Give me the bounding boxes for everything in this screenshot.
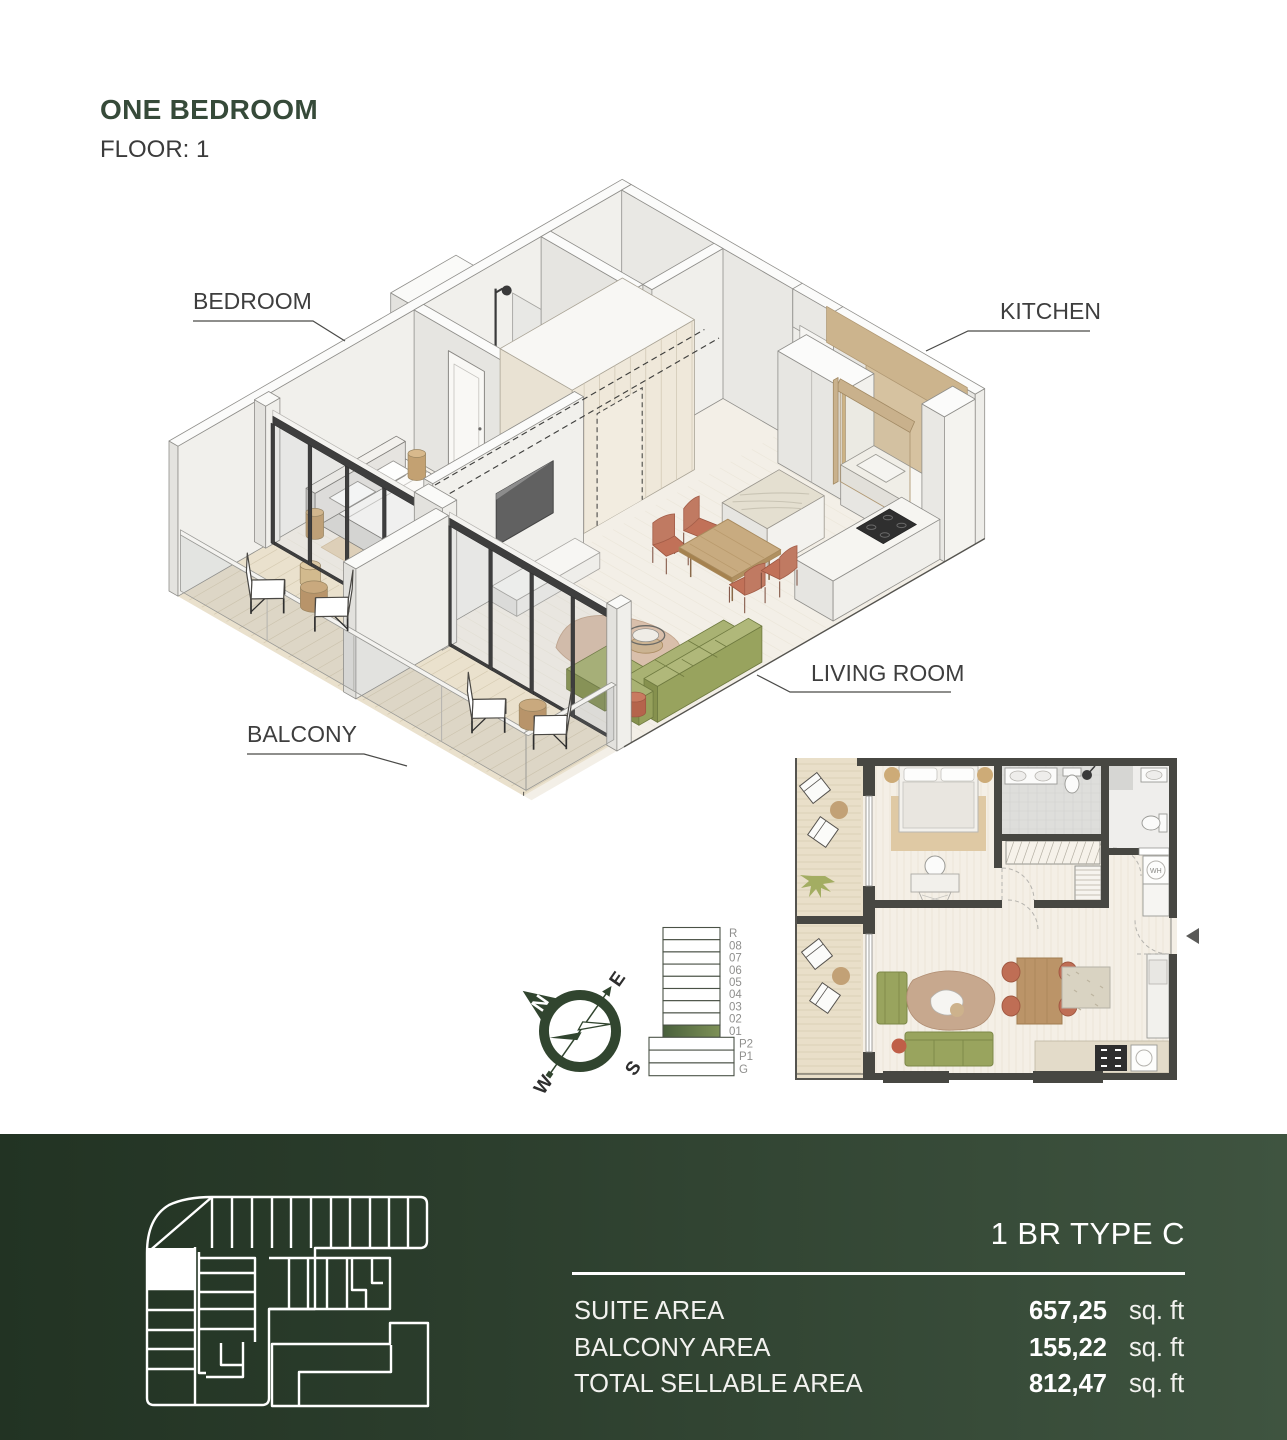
svg-text:BALCONY: BALCONY [247,721,357,747]
svg-text:BALCONY AREA: BALCONY AREA [574,1334,771,1362]
svg-text:02: 02 [729,1014,742,1026]
svg-text:BEDROOM: BEDROOM [193,288,312,314]
svg-text:01: 01 [729,1026,742,1038]
svg-text:sq. ft: sq. ft [1129,1297,1184,1325]
svg-text:FLOOR: 1: FLOOR: 1 [100,136,209,163]
svg-text:P2: P2 [739,1038,753,1050]
svg-text:R: R [729,928,737,940]
svg-text:05: 05 [729,977,742,989]
svg-text:07: 07 [729,953,742,965]
svg-text:657,25: 657,25 [1029,1297,1107,1325]
svg-text:WH: WH [1150,868,1162,875]
svg-text:812,47: 812,47 [1029,1370,1107,1398]
svg-text:1 BR TYPE C: 1 BR TYPE C [991,1216,1185,1251]
svg-text:ONE BEDROOM: ONE BEDROOM [100,94,318,125]
svg-text:G: G [739,1064,748,1076]
svg-text:sq. ft: sq. ft [1129,1334,1184,1362]
svg-text:04: 04 [729,989,742,1001]
svg-text:P1: P1 [739,1051,753,1063]
svg-text:155,22: 155,22 [1029,1334,1107,1362]
svg-text:03: 03 [729,1001,742,1013]
svg-text:LIVING ROOM: LIVING ROOM [811,660,964,686]
svg-text:SUITE AREA: SUITE AREA [574,1297,724,1325]
svg-text:06: 06 [729,965,742,977]
svg-text:KITCHEN: KITCHEN [1000,298,1101,324]
svg-text:TOTAL SELLABLE AREA: TOTAL SELLABLE AREA [574,1370,863,1398]
svg-text:08: 08 [729,940,742,952]
svg-text:sq. ft: sq. ft [1129,1370,1184,1398]
